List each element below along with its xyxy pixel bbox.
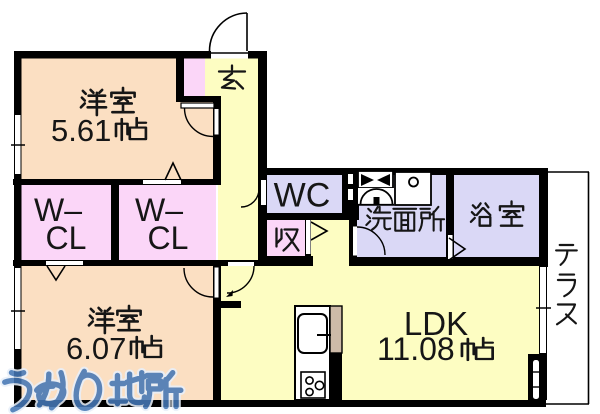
svg-text:CL: CL xyxy=(148,220,189,256)
svg-text:6.07: 6.07 xyxy=(66,331,126,366)
svg-text:WC: WC xyxy=(274,177,331,215)
svg-text:CL: CL xyxy=(46,220,87,256)
svg-text:11.08: 11.08 xyxy=(377,331,455,367)
svg-text:5.61: 5.61 xyxy=(51,113,111,148)
